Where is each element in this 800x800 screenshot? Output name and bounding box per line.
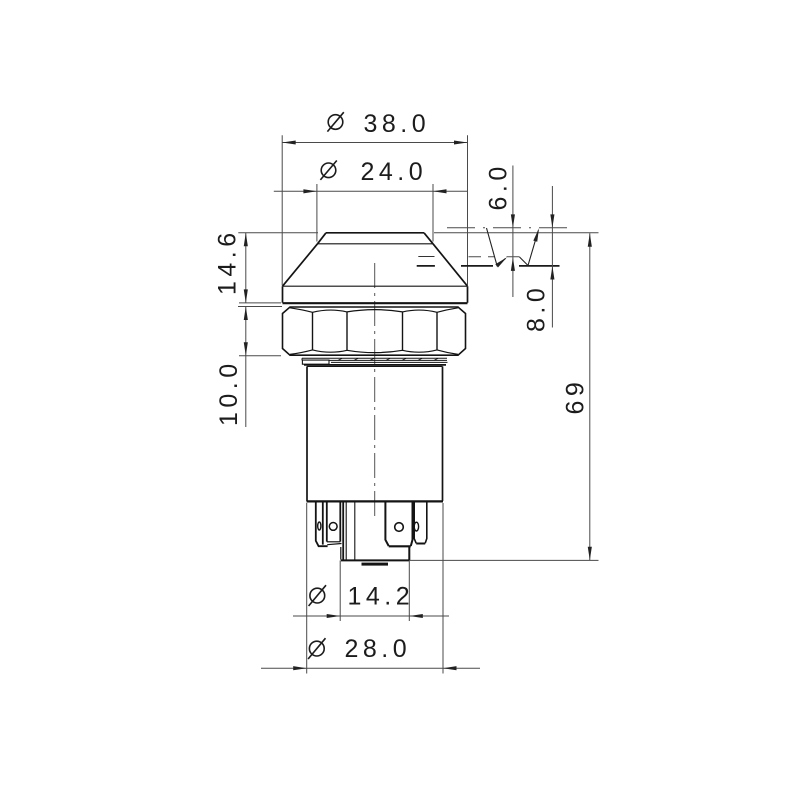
svg-text:8.0: 8.0 — [523, 284, 551, 332]
svg-text:28.0: 28.0 — [345, 635, 412, 663]
svg-text:38.0: 38.0 — [364, 110, 431, 138]
svg-text:69: 69 — [562, 378, 590, 415]
svg-text:10.0: 10.0 — [215, 359, 243, 426]
svg-text:14.6: 14.6 — [214, 228, 242, 295]
svg-text:6.0: 6.0 — [485, 162, 513, 210]
svg-text:14.2: 14.2 — [348, 583, 415, 611]
svg-text:24.0: 24.0 — [361, 158, 428, 186]
